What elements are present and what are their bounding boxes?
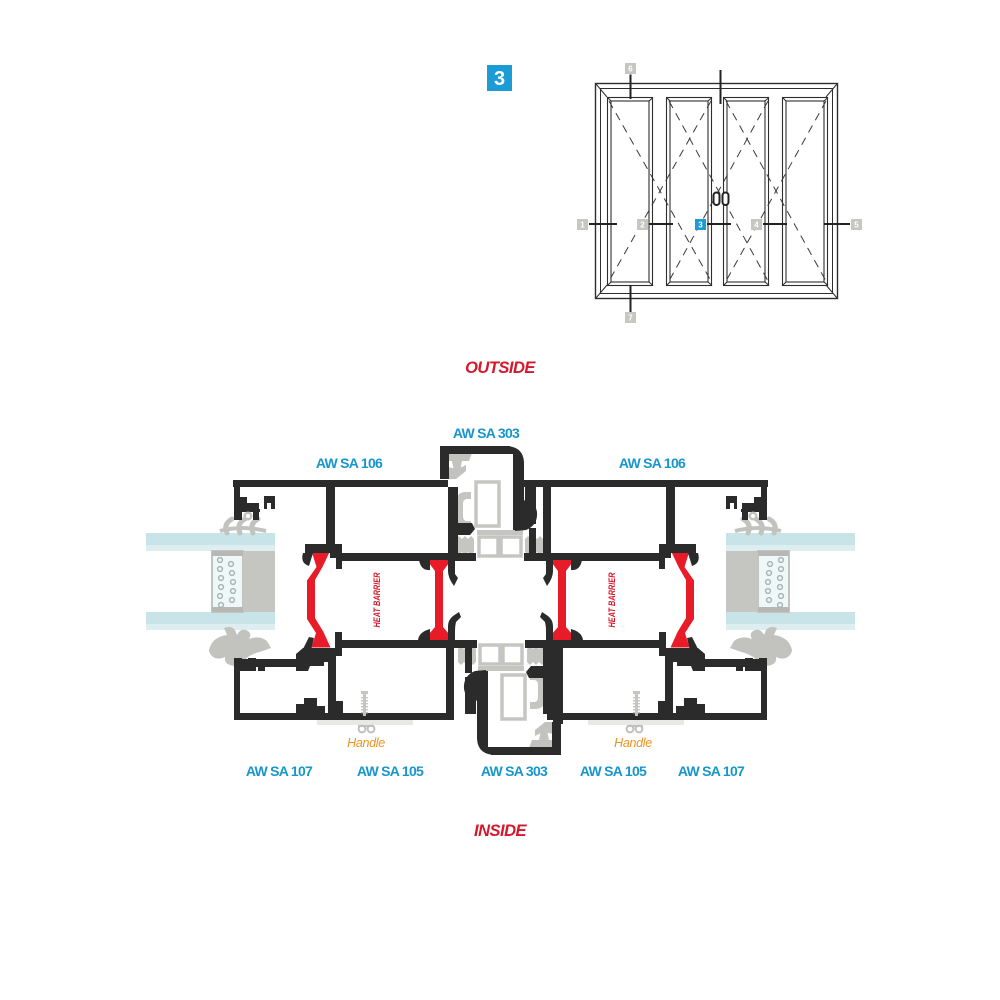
svg-text:3: 3 <box>494 68 505 90</box>
svg-text:AW SA 106: AW SA 106 <box>619 455 686 471</box>
svg-text:AW SA 106: AW SA 106 <box>316 455 383 471</box>
svg-text:AW SA 303: AW SA 303 <box>453 425 520 441</box>
svg-text:4: 4 <box>754 221 759 230</box>
svg-text:HEAT BARRIER: HEAT BARRIER <box>372 572 383 627</box>
svg-text:AW SA 107: AW SA 107 <box>246 763 313 779</box>
svg-text:AW SA 107: AW SA 107 <box>678 763 745 779</box>
svg-text:1: 1 <box>580 221 585 230</box>
svg-text:HEAT BARRIER: HEAT BARRIER <box>607 572 618 627</box>
svg-text:Handle: Handle <box>614 736 652 750</box>
svg-text:AW SA 105: AW SA 105 <box>580 763 647 779</box>
svg-text:OUTSIDE: OUTSIDE <box>465 359 536 377</box>
svg-text:INSIDE: INSIDE <box>474 822 528 840</box>
svg-text:7: 7 <box>628 314 633 323</box>
svg-text:Handle: Handle <box>347 736 385 750</box>
svg-text:6: 6 <box>628 65 633 74</box>
svg-text:2: 2 <box>640 221 645 230</box>
svg-text:3: 3 <box>698 221 703 230</box>
svg-text:AW SA 105: AW SA 105 <box>357 763 424 779</box>
svg-text:AW SA 303: AW SA 303 <box>481 763 548 779</box>
svg-text:5: 5 <box>854 221 859 230</box>
